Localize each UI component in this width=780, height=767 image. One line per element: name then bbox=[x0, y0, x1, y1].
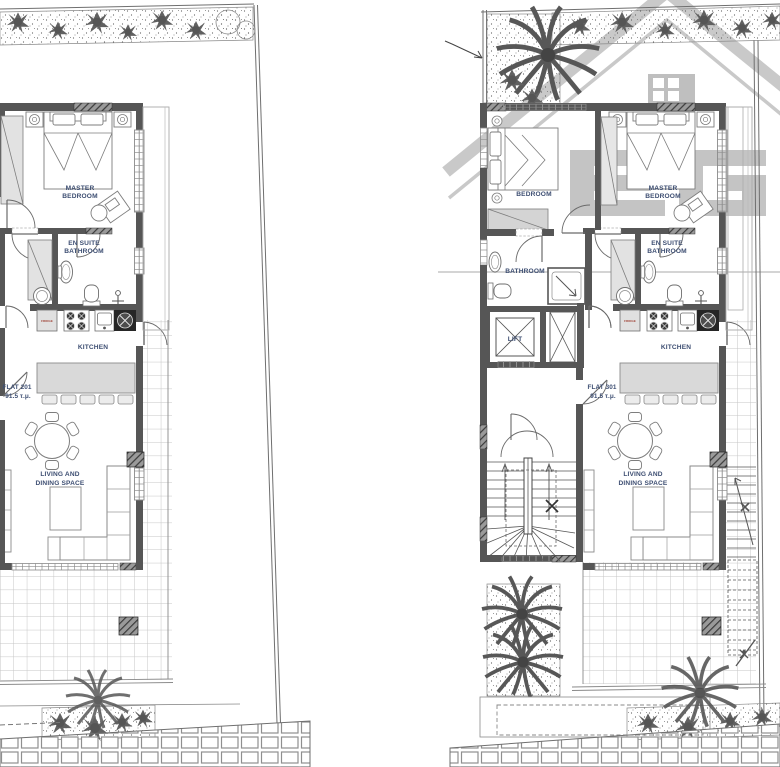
flat301-west-wing bbox=[480, 103, 617, 562]
label-fridge-left: FRIDGE bbox=[41, 319, 53, 323]
label-kitchen-right: KITCHEN bbox=[661, 344, 691, 351]
label-flat201-name: FLAT 201 bbox=[2, 384, 31, 391]
floor-plan-sheet: MASTER BEDROOM EN SUITE BATHROOM KITCHEN… bbox=[0, 0, 780, 767]
label-ensuite-left-2: BATHROOM bbox=[64, 248, 104, 255]
staircase bbox=[480, 363, 583, 562]
label-living-right-1: LIVING AND bbox=[623, 471, 662, 478]
label-ensuite-right-2: BATHROOM bbox=[647, 248, 687, 255]
light-well bbox=[546, 303, 584, 368]
label-ensuite-right-1: EN SUITE bbox=[651, 240, 683, 247]
label-master-bedroom-left-2: BEDROOM bbox=[62, 193, 98, 200]
label-living-right-2: DINING SPACE bbox=[619, 480, 668, 487]
label-living-left-1: LIVING AND bbox=[40, 471, 79, 478]
label-ensuite-left-1: EN SUITE bbox=[68, 240, 100, 247]
label-bathroom-right: BATHROOM bbox=[505, 268, 545, 275]
label-master-bedroom-left-1: MASTER bbox=[66, 185, 95, 192]
label-bedroom-right: BEDROOM bbox=[516, 191, 552, 198]
bathroom-fixtures bbox=[488, 252, 585, 304]
label-fridge-right: FRIDGE bbox=[624, 319, 636, 323]
label-flat301-name: FLAT 301 bbox=[587, 384, 616, 391]
label-flat301-area: 91.5 τ.μ. bbox=[590, 393, 616, 400]
site-arrow bbox=[445, 41, 482, 58]
label-lift: LIFT bbox=[508, 336, 523, 343]
label-master-bedroom-right-1: MASTER bbox=[649, 185, 678, 192]
left-planting-strip-top bbox=[0, 7, 255, 45]
label-flat201-area: 91.5 τ.μ. bbox=[5, 393, 31, 400]
label-living-left-2: DINING SPACE bbox=[36, 480, 85, 487]
left-plan: MASTER BEDROOM EN SUITE BATHROOM KITCHEN… bbox=[0, 4, 310, 767]
right-plan: BEDROOM MASTER BEDROOM BATHROOM EN SUITE… bbox=[445, 4, 780, 767]
bedroom2-furniture bbox=[488, 116, 558, 230]
right-planting-strip-top bbox=[552, 6, 780, 45]
label-master-bedroom-right-2: BEDROOM bbox=[645, 193, 681, 200]
label-kitchen-left: KITCHEN bbox=[78, 344, 108, 351]
right-palm-garden-bottom bbox=[482, 577, 563, 698]
